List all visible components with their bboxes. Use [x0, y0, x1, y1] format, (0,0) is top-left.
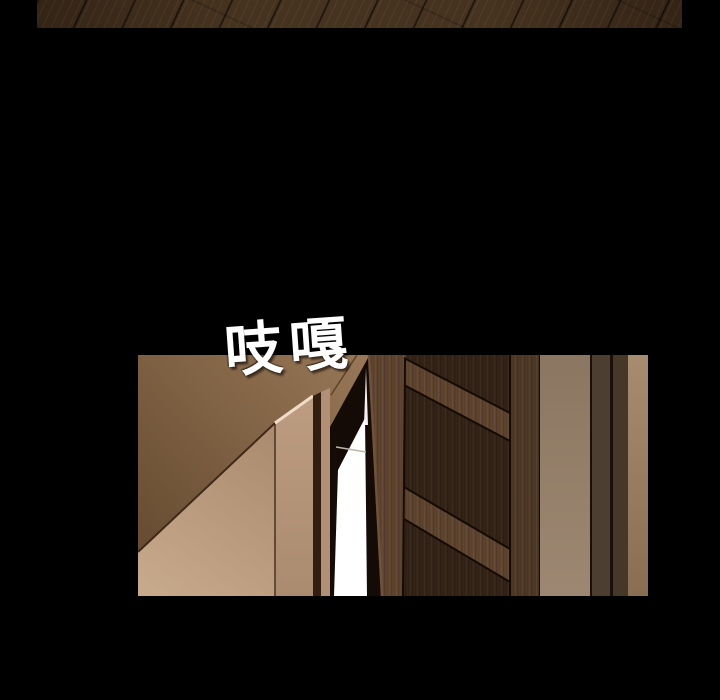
- wall-strip-line-1: [590, 355, 592, 596]
- floor-texture-strip: [37, 0, 682, 28]
- wall-strip-darker: [613, 355, 628, 596]
- wall-strip-far: [628, 355, 648, 596]
- open-door: [368, 355, 540, 596]
- door-jamb-side: [321, 388, 330, 596]
- door-jamb-front: [275, 396, 313, 596]
- webtoon-page: 吱嘎: [0, 0, 720, 700]
- door-wood-grain: [368, 355, 540, 596]
- wall-strip-line-2: [610, 355, 613, 596]
- panel-illustration: [138, 355, 648, 596]
- wall-strip-near: [540, 355, 590, 596]
- sfx-text: 吱嘎: [221, 296, 357, 389]
- door-jamb-corner: [313, 392, 321, 596]
- comic-panel: [138, 355, 648, 596]
- wall-strip-dark: [592, 355, 610, 596]
